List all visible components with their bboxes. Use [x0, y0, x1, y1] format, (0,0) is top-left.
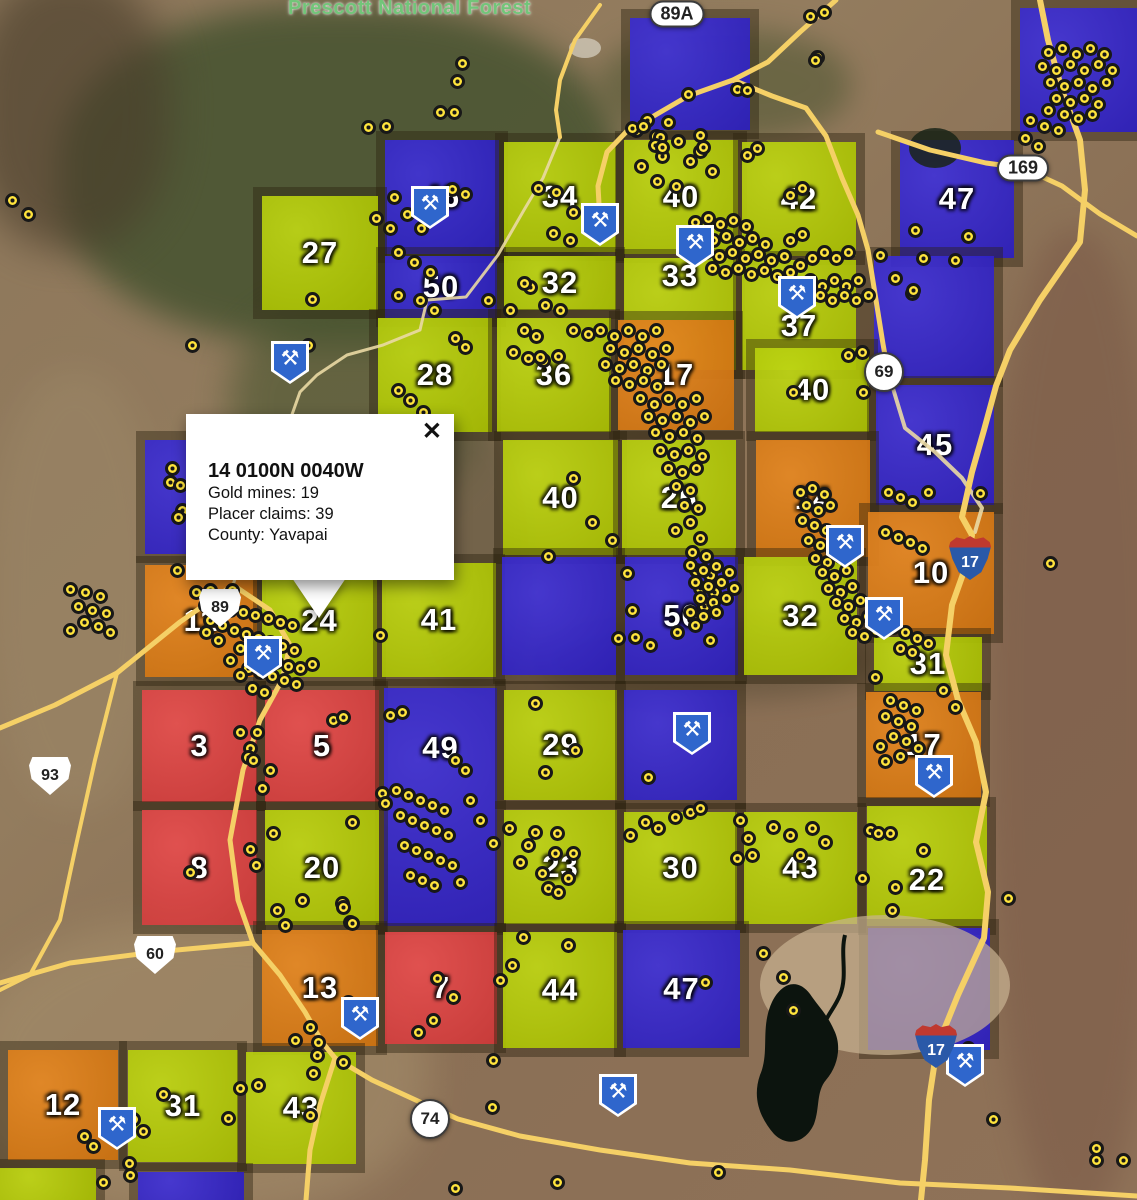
mine-dot-marker[interactable]	[533, 350, 548, 365]
mine-dot-marker[interactable]	[585, 515, 600, 530]
mine-dot-marker[interactable]	[750, 141, 765, 156]
mine-dot-marker[interactable]	[861, 288, 876, 303]
mine-dot-marker[interactable]	[448, 1181, 463, 1196]
mine-dot-marker[interactable]	[851, 273, 866, 288]
mine-dot-marker[interactable]	[1041, 103, 1056, 118]
mine-dot-marker[interactable]	[668, 523, 683, 538]
mine-dot-marker[interactable]	[345, 916, 360, 931]
mine-dot-marker[interactable]	[636, 373, 651, 388]
mine-dot-marker[interactable]	[683, 483, 698, 498]
mine-dot-marker[interactable]	[906, 283, 921, 298]
square-number: 22	[867, 862, 987, 898]
mine-dot-marker[interactable]	[1043, 75, 1058, 90]
mine-dot-marker[interactable]	[669, 179, 684, 194]
mine-dot-marker[interactable]	[156, 1087, 171, 1102]
mine-dot-marker[interactable]	[634, 159, 649, 174]
mine-dot-marker[interactable]	[973, 486, 988, 501]
mine-dot-marker[interactable]	[446, 990, 461, 1005]
mine-dot-marker[interactable]	[916, 843, 931, 858]
mine-dot-marker[interactable]	[730, 851, 745, 866]
mine-dot-marker[interactable]	[481, 293, 496, 308]
mine-dot-marker[interactable]	[369, 211, 384, 226]
mine-dot-marker[interactable]	[683, 154, 698, 169]
mine-dot-marker[interactable]	[915, 541, 930, 556]
mine-dot-marker[interactable]	[1071, 75, 1086, 90]
mine-dot-marker[interactable]	[170, 563, 185, 578]
mine-dot-marker[interactable]	[93, 589, 108, 604]
mine-dot-marker[interactable]	[841, 348, 856, 363]
mine-dot-marker[interactable]	[1041, 45, 1056, 60]
mine-pick-marker[interactable]: ⚒	[599, 1074, 637, 1117]
mine-dot-marker[interactable]	[888, 880, 903, 895]
mine-dot-marker[interactable]	[407, 255, 422, 270]
grid-square-41[interactable]: 41	[382, 563, 496, 677]
mine-dot-marker[interactable]	[96, 1175, 111, 1190]
square-number: 49	[384, 730, 497, 766]
mine-dot-marker[interactable]	[550, 826, 565, 841]
mine-dot-marker[interactable]	[936, 683, 951, 698]
mine-dot-marker[interactable]	[486, 1053, 501, 1068]
mine-dot-marker[interactable]	[948, 700, 963, 715]
mine-dot-marker[interactable]	[733, 813, 748, 828]
mine-dot-marker[interactable]	[395, 705, 410, 720]
mine-dot-marker[interactable]	[538, 765, 553, 780]
mine-dot-marker[interactable]	[661, 115, 676, 130]
mine-dot-marker[interactable]	[550, 1175, 565, 1190]
mine-dot-marker[interactable]	[659, 341, 674, 356]
mine-dot-marker[interactable]	[698, 975, 713, 990]
mine-dot-marker[interactable]	[1051, 123, 1066, 138]
mine-dot-marker[interactable]	[561, 871, 576, 886]
mine-dot-marker[interactable]	[909, 703, 924, 718]
mine-dot-marker[interactable]	[626, 357, 641, 372]
grid-square[interactable]	[138, 1172, 244, 1200]
mine-dot-marker[interactable]	[1089, 1153, 1104, 1168]
mine-dot-marker[interactable]	[458, 340, 473, 355]
crossed-hammers-icon: ⚒	[344, 1000, 376, 1037]
crossed-hammers-icon: ⚒	[829, 528, 861, 565]
mine-dot-marker[interactable]	[233, 725, 248, 740]
mine-dot-marker[interactable]	[693, 531, 708, 546]
mine-dot-marker[interactable]	[661, 461, 676, 476]
mine-dot-marker[interactable]	[441, 828, 456, 843]
mine-dot-marker[interactable]	[21, 207, 36, 222]
mine-dot-marker[interactable]	[1031, 139, 1046, 154]
square-number: 41	[382, 602, 496, 638]
mine-dot-marker[interactable]	[278, 918, 293, 933]
mine-dot-marker[interactable]	[289, 677, 304, 692]
mine-dot-marker[interactable]	[651, 821, 666, 836]
mine-dot-marker[interactable]	[805, 821, 820, 836]
mine-dot-marker[interactable]	[295, 893, 310, 908]
mine-dot-marker[interactable]	[458, 763, 473, 778]
mine-dot-marker[interactable]	[669, 409, 684, 424]
square-number: 31	[874, 646, 982, 682]
mine-dot-marker[interactable]	[361, 120, 376, 135]
square-number: 5	[265, 728, 379, 764]
mine-dot-marker[interactable]	[625, 603, 640, 618]
mine-dot-marker[interactable]	[378, 796, 393, 811]
mine-dot-marker[interactable]	[427, 878, 442, 893]
mine-dot-marker[interactable]	[303, 1108, 318, 1123]
mine-dot-marker[interactable]	[463, 793, 478, 808]
mine-dot-marker[interactable]	[561, 938, 576, 953]
mine-dot-marker[interactable]	[622, 377, 637, 392]
mine-dot-marker[interactable]	[741, 831, 756, 846]
mine-dot-marker[interactable]	[845, 579, 860, 594]
mine-dot-marker[interactable]	[529, 329, 544, 344]
mine-dot-marker[interactable]	[703, 633, 718, 648]
mine-dot-marker[interactable]	[709, 605, 724, 620]
mine-dot-marker[interactable]	[783, 828, 798, 843]
mine-dot-marker[interactable]	[447, 105, 462, 120]
mine-dot-marker[interactable]	[336, 710, 351, 725]
mine-dot-marker[interactable]	[793, 848, 808, 863]
mine-dot-marker[interactable]	[493, 973, 508, 988]
mine-dot-marker[interactable]	[423, 265, 438, 280]
mine-dot-marker[interactable]	[1043, 556, 1058, 571]
mine-dot-marker[interactable]	[808, 53, 823, 68]
mine-dot-marker[interactable]	[871, 826, 886, 841]
mine-dot-marker[interactable]	[551, 885, 566, 900]
mine-dot-marker[interactable]	[566, 205, 581, 220]
mine-dot-marker[interactable]	[541, 549, 556, 564]
mine-dot-marker[interactable]	[620, 566, 635, 581]
mine-dot-marker[interactable]	[288, 1033, 303, 1048]
mine-dot-marker[interactable]	[303, 1020, 318, 1035]
mine-dot-marker[interactable]	[908, 223, 923, 238]
mine-dot-marker[interactable]	[948, 253, 963, 268]
mine-dot-marker[interactable]	[623, 828, 638, 843]
mine-dot-marker[interactable]	[1085, 107, 1100, 122]
grid-square-47[interactable]: 47	[900, 140, 1014, 258]
grid-square[interactable]	[0, 1168, 96, 1200]
mine-dot-marker[interactable]	[165, 461, 180, 476]
mine-dot-marker[interactable]	[243, 842, 258, 857]
mine-dot-marker[interactable]	[841, 245, 856, 260]
mine-dot-marker[interactable]	[548, 846, 563, 861]
mine-dot-marker[interactable]	[803, 9, 818, 24]
mine-dot-marker[interactable]	[391, 245, 406, 260]
mine-dot-marker[interactable]	[528, 696, 543, 711]
mine-dot-marker[interactable]	[786, 385, 801, 400]
mine-dot-marker[interactable]	[598, 357, 613, 372]
mine-dot-marker[interactable]	[568, 743, 583, 758]
mine-dot-marker[interactable]	[603, 341, 618, 356]
mine-dot-marker[interactable]	[611, 631, 626, 646]
mine-dot-marker[interactable]	[383, 221, 398, 236]
mine-dot-marker[interactable]	[711, 1165, 726, 1180]
mine-dot-marker[interactable]	[450, 74, 465, 89]
mine-dot-marker[interactable]	[411, 1025, 426, 1040]
mine-dot-marker[interactable]	[795, 227, 810, 242]
mine-dot-marker[interactable]	[1099, 75, 1114, 90]
mine-dot-marker[interactable]	[670, 625, 685, 640]
mine-dot-marker[interactable]	[516, 930, 531, 945]
mine-dot-marker[interactable]	[653, 443, 668, 458]
satellite-map-canvas[interactable]: 4634404247275032333728361740454025141011…	[0, 0, 1137, 1200]
mine-dot-marker[interactable]	[1023, 113, 1038, 128]
mine-dot-marker[interactable]	[649, 323, 664, 338]
mine-dot-marker[interactable]	[391, 288, 406, 303]
mine-dot-marker[interactable]	[878, 754, 893, 769]
mine-dot-marker[interactable]	[71, 599, 86, 614]
square-number: 47	[623, 971, 740, 1007]
mine-dot-marker[interactable]	[1071, 111, 1086, 126]
mine-dot-marker[interactable]	[336, 900, 351, 915]
mine-dot-marker[interactable]	[199, 625, 214, 640]
mine-dot-marker[interactable]	[921, 485, 936, 500]
mine-dot-marker[interactable]	[246, 753, 261, 768]
mine-dot-marker[interactable]	[387, 190, 402, 205]
mine-dot-marker[interactable]	[740, 83, 755, 98]
mine-dot-marker[interactable]	[183, 865, 198, 880]
close-icon[interactable]: ✕	[422, 420, 442, 444]
mine-dot-marker[interactable]	[691, 501, 706, 516]
mine-dot-marker[interactable]	[521, 838, 536, 853]
grid-square-47[interactable]: 47	[623, 930, 740, 1048]
mine-dot-marker[interactable]	[795, 181, 810, 196]
mine-dot-marker[interactable]	[905, 645, 920, 660]
mine-dot-marker[interactable]	[593, 323, 608, 338]
mine-dot-marker[interactable]	[310, 1048, 325, 1063]
mine-dot-marker[interactable]	[676, 425, 691, 440]
mine-dot-marker[interactable]	[1063, 57, 1078, 72]
mine-dot-marker[interactable]	[868, 670, 883, 685]
mine-dot-marker[interactable]	[776, 970, 791, 985]
mine-dot-marker[interactable]	[675, 465, 690, 480]
mine-dot-marker[interactable]	[427, 303, 442, 318]
mine-dot-marker[interactable]	[1055, 41, 1070, 56]
mine-dot-marker[interactable]	[893, 749, 908, 764]
mine-dot-marker[interactable]	[1077, 91, 1092, 106]
mine-dot-marker[interactable]	[5, 193, 20, 208]
mine-dot-marker[interactable]	[563, 233, 578, 248]
mine-dot-marker[interactable]	[171, 510, 186, 525]
mine-dot-marker[interactable]	[689, 461, 704, 476]
mine-dot-marker[interactable]	[458, 187, 473, 202]
mine-dot-marker[interactable]	[671, 134, 686, 149]
grid-square-31[interactable]: 31	[128, 1050, 238, 1162]
mine-dot-marker[interactable]	[535, 866, 550, 881]
mine-dot-marker[interactable]	[379, 119, 394, 134]
mine-dot-marker[interactable]	[86, 1139, 101, 1154]
mine-dot-marker[interactable]	[631, 341, 646, 356]
mine-dot-marker[interactable]	[403, 393, 418, 408]
mine-dot-marker[interactable]	[433, 105, 448, 120]
mine-dot-marker[interactable]	[921, 636, 936, 651]
mine-dot-marker[interactable]	[669, 479, 684, 494]
mine-dot-marker[interactable]	[1116, 1153, 1131, 1168]
mine-dot-marker[interactable]	[136, 1124, 151, 1139]
mine-dot-marker[interactable]	[766, 820, 781, 835]
mine-dot-marker[interactable]	[745, 848, 760, 863]
route-shield-169: 169	[997, 155, 1049, 182]
mine-dot-marker[interactable]	[531, 181, 546, 196]
mine-dot-marker[interactable]	[485, 1100, 500, 1115]
mine-dot-marker[interactable]	[445, 858, 460, 873]
grid-square-7[interactable]: 7	[385, 932, 497, 1044]
mine-dot-marker[interactable]	[719, 591, 734, 606]
mine-dot-marker[interactable]	[633, 391, 648, 406]
mine-dot-marker[interactable]	[885, 903, 900, 918]
square-number: 44	[503, 972, 617, 1008]
mine-dot-marker[interactable]	[270, 903, 285, 918]
mine-dot-marker[interactable]	[683, 515, 698, 530]
mine-dot-marker[interactable]	[650, 174, 665, 189]
mine-dot-marker[interactable]	[251, 1078, 266, 1093]
mine-dot-marker[interactable]	[888, 271, 903, 286]
mine-dot-marker[interactable]	[1001, 891, 1016, 906]
mine-dot-marker[interactable]	[904, 719, 919, 734]
mine-dot-marker[interactable]	[1037, 119, 1052, 134]
grid-square-43[interactable]: 43	[744, 812, 857, 924]
mine-dot-marker[interactable]	[621, 323, 636, 338]
mine-dot-marker[interactable]	[373, 628, 388, 643]
mine-dot-marker[interactable]	[430, 971, 445, 986]
grid-square-29[interactable]: 29	[504, 690, 617, 800]
mine-dot-marker[interactable]	[856, 385, 871, 400]
mine-dot-marker[interactable]	[655, 140, 670, 155]
grid-square-40[interactable]: 40	[503, 440, 618, 555]
mine-dot-marker[interactable]	[266, 826, 281, 841]
mine-dot-marker[interactable]	[911, 741, 926, 756]
mine-dot-marker[interactable]	[250, 725, 265, 740]
mine-dot-marker[interactable]	[78, 585, 93, 600]
mine-pick-marker[interactable]: ⚒	[271, 341, 309, 384]
mine-dot-marker[interactable]	[285, 618, 300, 633]
mine-dot-marker[interactable]	[605, 533, 620, 548]
mine-dot-marker[interactable]	[505, 958, 520, 973]
mine-dot-marker[interactable]	[305, 292, 320, 307]
grid-square-11[interactable]: 11	[145, 565, 257, 677]
mine-dot-marker[interactable]	[257, 685, 272, 700]
mine-dot-marker[interactable]	[437, 803, 452, 818]
mine-dot-marker[interactable]	[287, 643, 302, 658]
mine-dot-marker[interactable]	[63, 582, 78, 597]
mine-dot-marker[interactable]	[1083, 41, 1098, 56]
mine-dot-marker[interactable]	[263, 763, 278, 778]
mine-dot-marker[interactable]	[677, 498, 692, 513]
mine-dot-marker[interactable]	[77, 615, 92, 630]
mine-dot-marker[interactable]	[1057, 107, 1072, 122]
mine-dot-marker[interactable]	[873, 739, 888, 754]
mine-dot-marker[interactable]	[654, 357, 669, 372]
road-line	[335, 1058, 1137, 1196]
mine-dot-marker[interactable]	[506, 345, 521, 360]
mine-dot-marker[interactable]	[823, 498, 838, 513]
mine-dot-marker[interactable]	[608, 373, 623, 388]
mine-dot-marker[interactable]	[503, 303, 518, 318]
mine-dot-marker[interactable]	[566, 846, 581, 861]
mine-dot-marker[interactable]	[628, 630, 643, 645]
mine-dot-marker[interactable]	[961, 229, 976, 244]
mine-dot-marker[interactable]	[553, 303, 568, 318]
mine-dot-marker[interactable]	[681, 87, 696, 102]
mine-dot-marker[interactable]	[413, 293, 428, 308]
mine-dot-marker[interactable]	[549, 185, 564, 200]
mine-dot-marker[interactable]	[306, 1066, 321, 1081]
mine-dot-marker[interactable]	[905, 495, 920, 510]
mine-dot-marker[interactable]	[662, 429, 677, 444]
mine-dot-marker[interactable]	[916, 251, 931, 266]
mine-dot-marker[interactable]	[538, 298, 553, 313]
mine-dot-marker[interactable]	[648, 425, 663, 440]
mine-dot-marker[interactable]	[1035, 59, 1050, 74]
mine-dot-marker[interactable]	[502, 821, 517, 836]
mine-dot-marker[interactable]	[681, 443, 696, 458]
mine-dot-marker[interactable]	[513, 855, 528, 870]
mine-dot-marker[interactable]	[693, 801, 708, 816]
mine-dot-marker[interactable]	[455, 56, 470, 71]
mine-dot-marker[interactable]	[453, 875, 468, 890]
grid-square[interactable]	[502, 557, 616, 675]
mine-dot-marker[interactable]	[661, 391, 676, 406]
mine-dot-marker[interactable]	[551, 349, 566, 364]
grid-square-8[interactable]: 8	[142, 810, 257, 925]
mine-dot-marker[interactable]	[185, 338, 200, 353]
mine-dot-marker[interactable]	[668, 810, 683, 825]
mine-dot-marker[interactable]	[473, 813, 488, 828]
mine-dot-marker[interactable]	[641, 770, 656, 785]
mine-dot-marker[interactable]	[1091, 57, 1106, 72]
mine-dot-marker[interactable]	[667, 447, 682, 462]
mine-dot-marker[interactable]	[855, 345, 870, 360]
mine-dot-marker[interactable]	[123, 1168, 138, 1183]
mine-dot-marker[interactable]	[546, 226, 561, 241]
mine-dot-marker[interactable]	[705, 164, 720, 179]
mine-dot-marker[interactable]	[696, 140, 711, 155]
mine-dot-marker[interactable]	[566, 323, 581, 338]
mine-dot-marker[interactable]	[643, 638, 658, 653]
mine-dot-marker[interactable]	[426, 1013, 441, 1028]
mine-dot-marker[interactable]	[566, 471, 581, 486]
mine-dot-marker[interactable]	[345, 815, 360, 830]
mine-dot-marker[interactable]	[233, 1081, 248, 1096]
mine-dot-marker[interactable]	[233, 668, 248, 683]
popup-placer-claims: Placer claims: 39	[208, 504, 454, 525]
mine-dot-marker[interactable]	[305, 657, 320, 672]
mine-dot-marker[interactable]	[517, 276, 532, 291]
mine-dot-marker[interactable]	[986, 1112, 1001, 1127]
mine-dot-marker[interactable]	[689, 391, 704, 406]
mine-dot-marker[interactable]	[336, 1055, 351, 1070]
mine-dot-marker[interactable]	[786, 1003, 801, 1018]
mine-dot-marker[interactable]	[221, 1111, 236, 1126]
grid-square-12[interactable]: 12	[8, 1050, 118, 1160]
mine-dot-marker[interactable]	[223, 653, 238, 668]
mine-dot-marker[interactable]	[249, 858, 264, 873]
road-line	[556, 5, 600, 137]
mine-dot-marker[interactable]	[636, 119, 651, 134]
mine-dot-marker[interactable]	[63, 623, 78, 638]
mine-dot-marker[interactable]	[486, 836, 501, 851]
grid-square-44[interactable]: 44	[503, 932, 617, 1048]
mine-dot-marker[interactable]	[103, 625, 118, 640]
mine-dot-marker[interactable]	[255, 781, 270, 796]
mine-dot-marker[interactable]	[777, 249, 792, 264]
mine-dot-marker[interactable]	[641, 409, 656, 424]
grid-square-5[interactable]: 5	[265, 690, 379, 802]
mine-dot-marker[interactable]	[873, 248, 888, 263]
mine-dot-marker[interactable]	[697, 409, 712, 424]
mine-dot-marker[interactable]	[817, 5, 832, 20]
grid-square-27[interactable]: 27	[262, 196, 378, 310]
mine-dot-marker[interactable]	[818, 835, 833, 850]
mine-dot-marker[interactable]	[855, 871, 870, 886]
mine-dot-marker[interactable]	[756, 946, 771, 961]
grid-square-3[interactable]: 3	[142, 690, 257, 802]
